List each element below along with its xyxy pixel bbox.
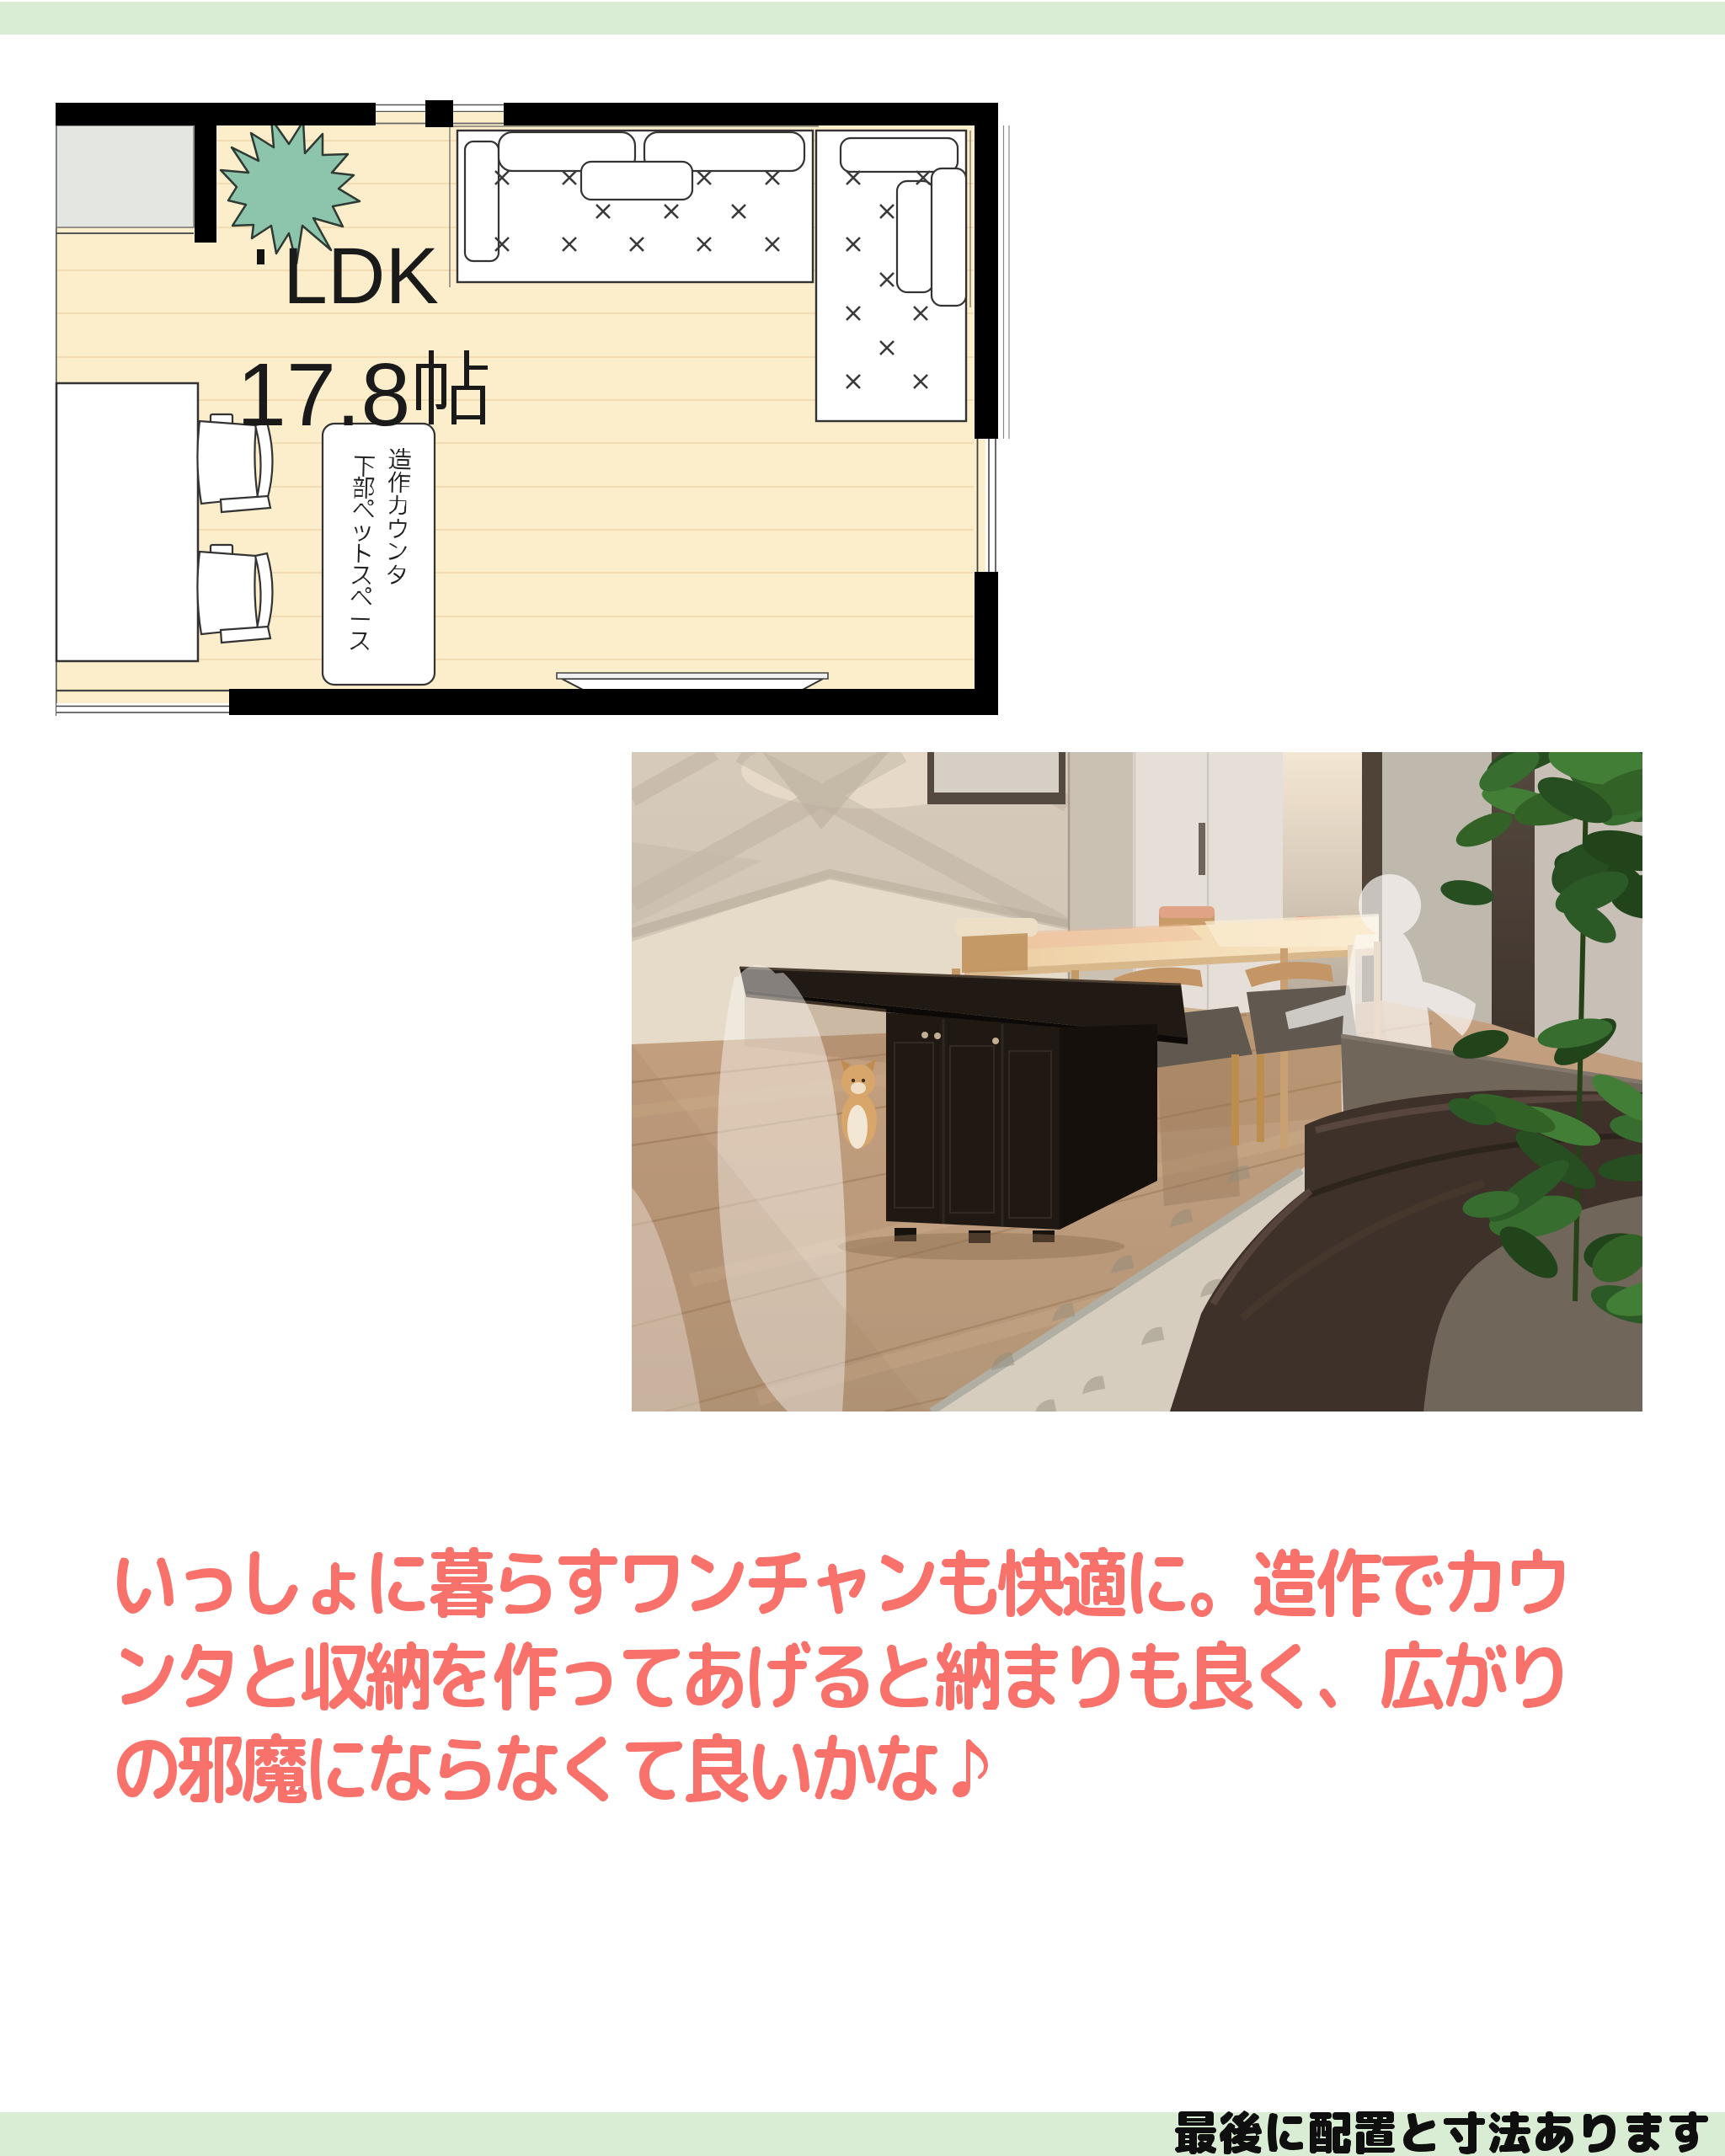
svg-text:LDK: LDK — [283, 232, 439, 321]
svg-text:17.8: 17.8 — [237, 345, 410, 445]
